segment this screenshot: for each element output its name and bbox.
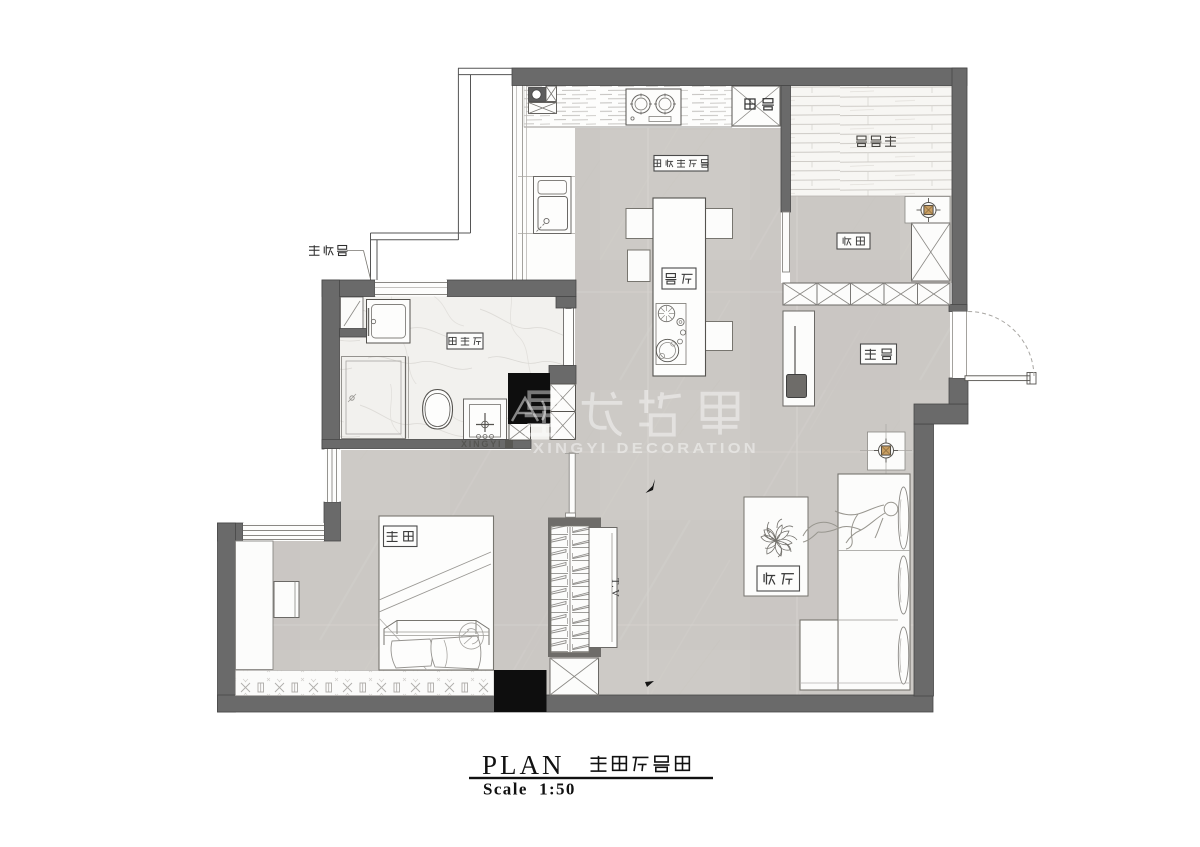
svg-text:XINGYI DECORATION: XINGYI DECORATION [533, 440, 759, 457]
svg-text:T.V: T.V [609, 578, 620, 598]
svg-text:Scale 1:50: Scale 1:50 [483, 780, 576, 799]
svg-text:XINGYI: XINGYI [461, 439, 502, 449]
svg-text:PLAN: PLAN [482, 750, 565, 780]
